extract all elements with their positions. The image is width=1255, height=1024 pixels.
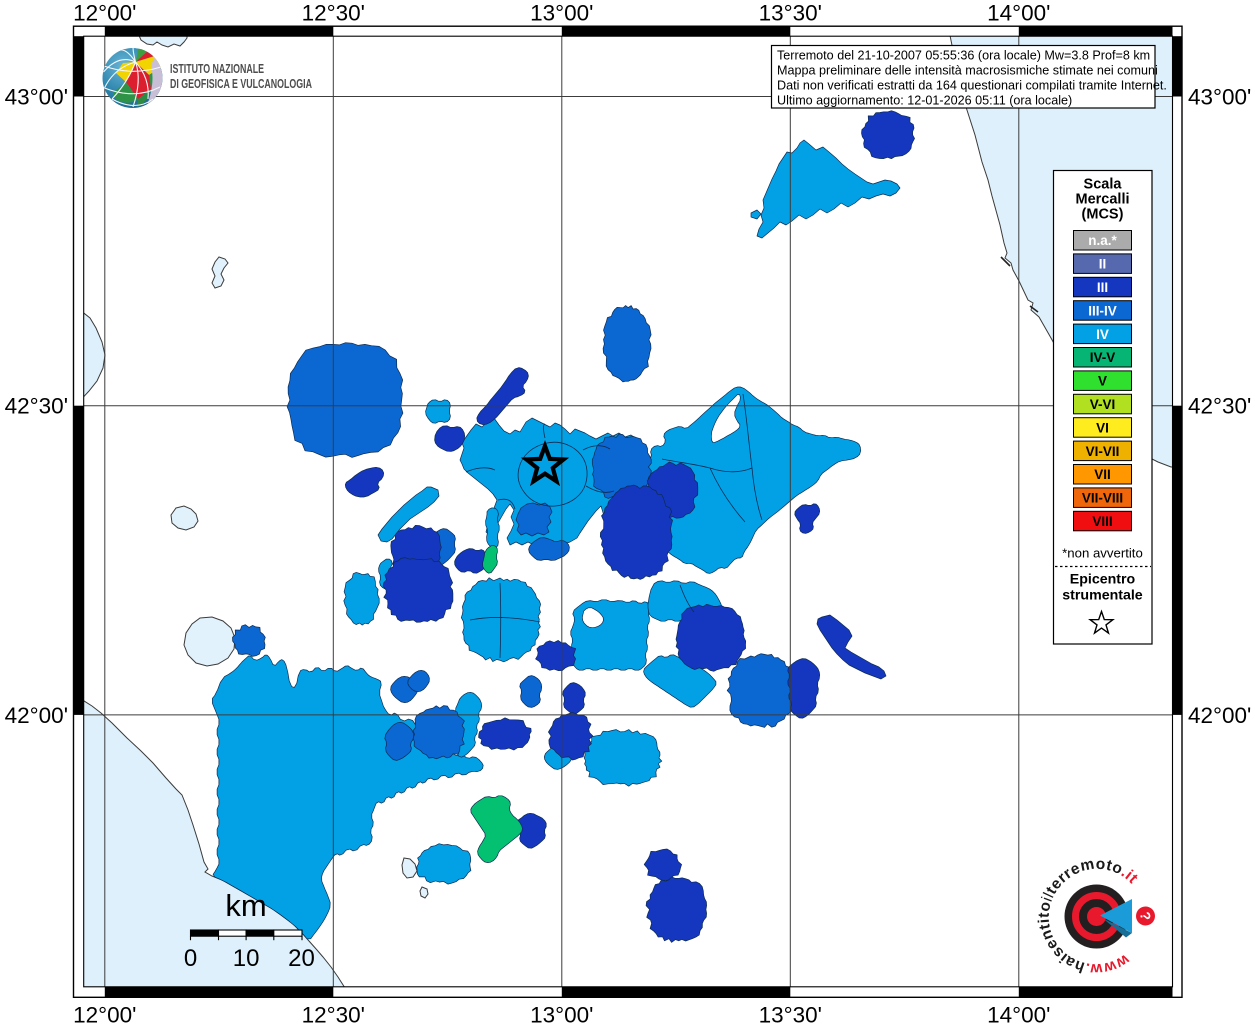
- svg-text:DI GEOFISICA E VULCANOLOGIA: DI GEOFISICA E VULCANOLOGIA: [170, 77, 312, 91]
- svg-text:12°00': 12°00': [73, 1, 136, 26]
- svg-text:42°00': 42°00': [5, 703, 68, 728]
- svg-text:Mercalli: Mercalli: [1076, 192, 1130, 208]
- svg-text:VI-VII: VI-VII: [1086, 444, 1120, 459]
- svg-text:42°00': 42°00': [1188, 703, 1251, 728]
- svg-text:ISTITUTO NAZIONALE: ISTITUTO NAZIONALE: [170, 62, 264, 76]
- svg-text:13°30': 13°30': [759, 1003, 822, 1024]
- svg-text:12°30': 12°30': [302, 1003, 365, 1024]
- svg-text:strumentale: strumentale: [1062, 588, 1143, 604]
- svg-text:0: 0: [184, 945, 197, 972]
- svg-text:Terremoto del 21-10-2007 05:55: Terremoto del 21-10-2007 05:55:36 (ora l…: [777, 49, 1150, 63]
- svg-text:42°30': 42°30': [1188, 394, 1251, 419]
- svg-text:43°00': 43°00': [1188, 85, 1251, 110]
- svg-text:VII: VII: [1094, 467, 1111, 482]
- svg-text:II: II: [1099, 257, 1107, 272]
- svg-text:IV: IV: [1096, 327, 1109, 342]
- svg-text:km: km: [225, 888, 266, 923]
- svg-text:Mappa preliminare delle intens: Mappa preliminare delle intensità macros…: [777, 64, 1158, 78]
- svg-text:12°30': 12°30': [302, 1, 365, 26]
- svg-text:14°00': 14°00': [987, 1003, 1050, 1024]
- svg-text:13°30': 13°30': [759, 1, 822, 26]
- svg-text:Scala: Scala: [1084, 177, 1123, 193]
- svg-text:10: 10: [233, 945, 260, 972]
- svg-text:VII-VIII: VII-VIII: [1082, 491, 1123, 506]
- svg-text:III: III: [1097, 280, 1108, 295]
- svg-text:IV-V: IV-V: [1090, 350, 1116, 365]
- svg-text:42°30': 42°30': [5, 394, 68, 419]
- svg-text:*non avvertito: *non avvertito: [1062, 546, 1143, 561]
- svg-text:13°00': 13°00': [530, 1003, 593, 1024]
- svg-text:12°00': 12°00': [73, 1003, 136, 1024]
- svg-text:VI: VI: [1096, 420, 1109, 435]
- svg-text:V: V: [1098, 374, 1107, 389]
- svg-text:(MCS): (MCS): [1082, 207, 1124, 223]
- svg-text:14°00': 14°00': [987, 1, 1050, 26]
- svg-text:VIII: VIII: [1092, 514, 1112, 529]
- svg-text:13°00': 13°00': [530, 1, 593, 26]
- svg-text:III-IV: III-IV: [1088, 303, 1117, 318]
- svg-text:43°00': 43°00': [5, 85, 68, 110]
- svg-text:Epicentro: Epicentro: [1070, 572, 1136, 588]
- svg-text:V-VI: V-VI: [1090, 397, 1116, 412]
- svg-text:Dati non verificati estratti d: Dati non verificati estratti da 164 ques…: [777, 79, 1167, 93]
- svg-text:Ultimo aggiornamento: 12-01-20: Ultimo aggiornamento: 12-01-2026 05:11 (…: [777, 94, 1072, 108]
- svg-text:n.a.*: n.a.*: [1088, 233, 1117, 248]
- svg-text:20: 20: [288, 945, 315, 972]
